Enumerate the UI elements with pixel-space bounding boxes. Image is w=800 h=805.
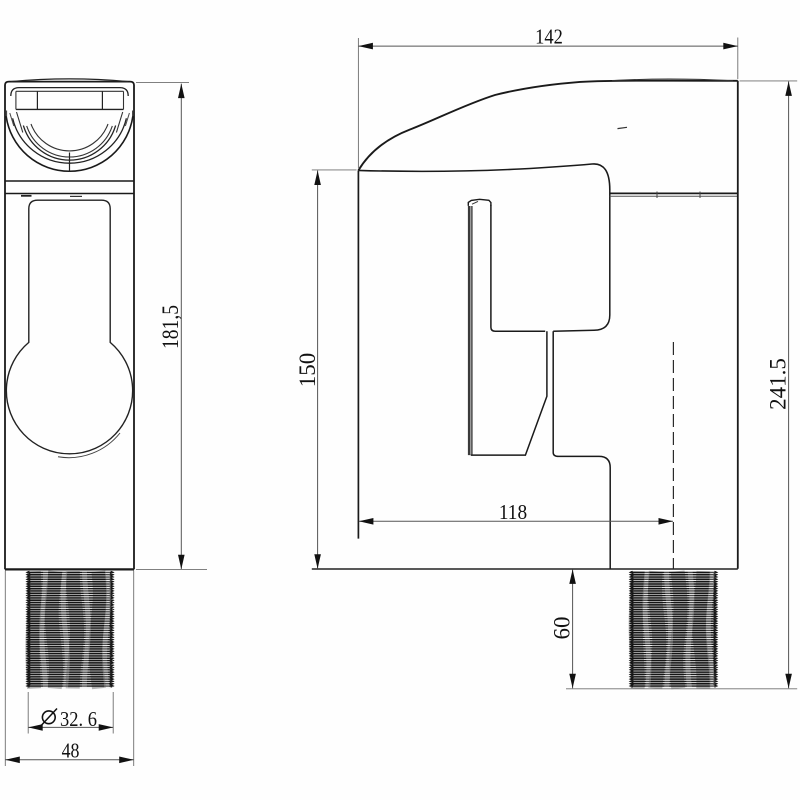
svg-text:181,5: 181,5	[157, 305, 183, 349]
svg-text:48: 48	[62, 740, 80, 763]
svg-text:118: 118	[499, 501, 527, 524]
svg-text:60: 60	[550, 617, 575, 640]
svg-text:142: 142	[535, 26, 563, 49]
svg-text:32. 6: 32. 6	[60, 708, 97, 731]
svg-text:241.5: 241.5	[766, 358, 791, 410]
svg-text:150: 150	[295, 353, 320, 388]
